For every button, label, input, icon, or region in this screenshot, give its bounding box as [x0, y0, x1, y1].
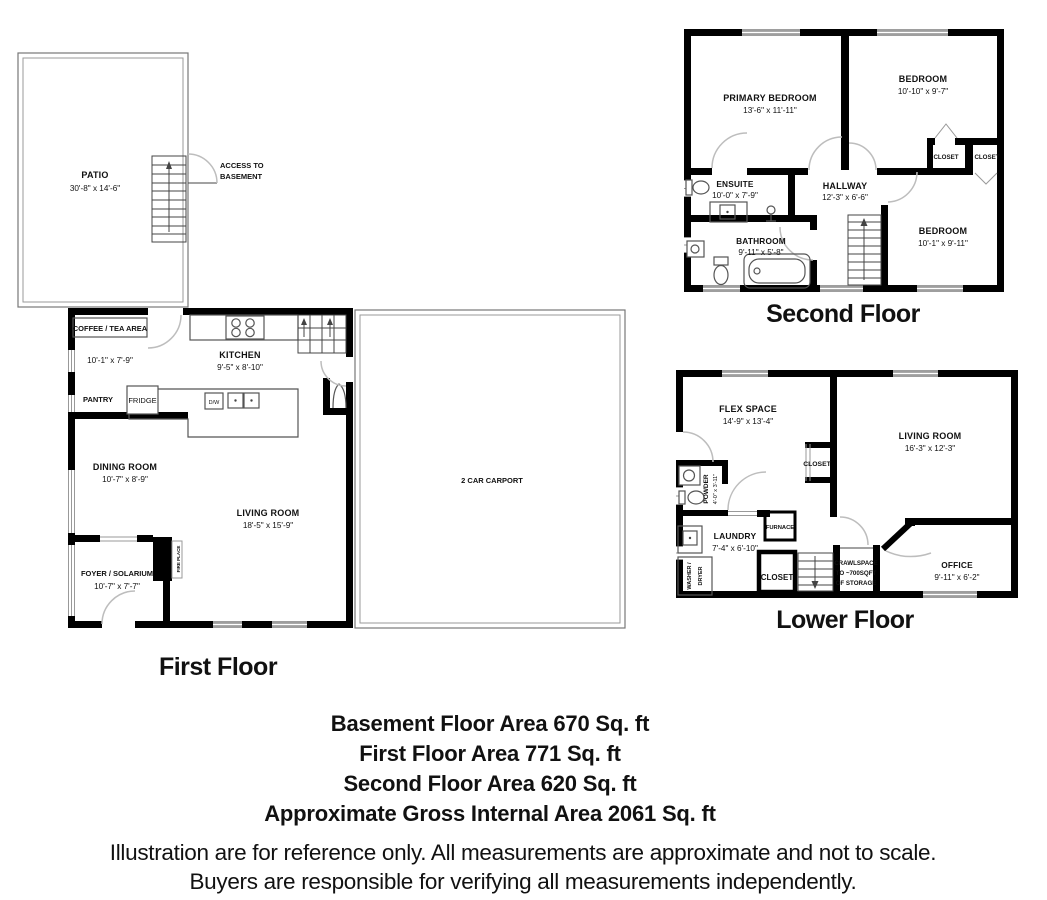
summary-basement: Basement Floor Area 670 Sq. ft — [331, 711, 650, 736]
lower-floor-plan: FLEX SPACE 14'-9" x 13'-4" LIVING ROOM 1… — [676, 370, 1018, 634]
room-dims-flex-space: 14'-9" x 13'-4" — [723, 417, 773, 426]
room-dims-coffee-tea: 10'-1" x 7'-9" — [87, 356, 133, 365]
room-label-ensuite: ENSUITE — [716, 179, 754, 189]
room-label-flex-space: FLEX SPACE — [719, 404, 777, 414]
foyer-entry-door-arc — [102, 591, 135, 624]
room-dims-foyer: 10'-7" x 7'-7" — [94, 582, 140, 591]
fireplace-block — [153, 537, 172, 581]
powder-fixtures — [679, 466, 704, 504]
disclaimer-line1: Illustration are for reference only. All… — [110, 840, 936, 865]
access-basement-line1: ACCESS TO — [220, 161, 264, 170]
crawlspace-line3: OF STORAGE — [836, 580, 877, 587]
bedroom-lower-door-arc — [888, 172, 917, 202]
room-label-laundry: LAUNDRY — [714, 531, 757, 541]
closet-bifold-icon-right — [975, 173, 997, 184]
room-dims-living: 18'-5" x 15'-9" — [243, 521, 293, 530]
first-floor-stairs — [298, 315, 346, 353]
area-summary: Basement Floor Area 670 Sq. ft First Flo… — [264, 711, 716, 826]
stove — [226, 316, 264, 339]
living-door-arc — [840, 517, 868, 545]
summary-first: First Floor Area 771 Sq. ft — [359, 741, 621, 766]
floor-plan-canvas: PATIO 30'-8" x 14'-6" ACCESS TO BASEMENT — [0, 0, 1047, 900]
first-floor-plan: PATIO 30'-8" x 14'-6" ACCESS TO BASEMENT — [18, 53, 353, 681]
access-basement-line2: BASEMENT — [220, 172, 263, 181]
room-label-foyer: FOYER / SOLARIUM — [81, 569, 153, 578]
kitchen-island — [127, 386, 298, 437]
summary-second: Second Floor Area 620 Sq. ft — [343, 771, 637, 796]
bedroom-right-door-arc — [849, 143, 876, 170]
kitchen-counter — [190, 315, 298, 340]
patio-door-arc — [148, 315, 181, 348]
room-dims-living-room: 16'-3" x 12'-3" — [905, 444, 955, 453]
room-dims-laundry: 7'-4" x 6'-10" — [712, 544, 758, 553]
room-label-hallway: HALLWAY — [823, 181, 868, 191]
room-label-bathroom: BATHROOM — [736, 236, 786, 246]
toilet-bowl — [688, 491, 704, 504]
floor-plan-document: PATIO 30'-8" x 14'-6" ACCESS TO BASEMENT — [0, 0, 1047, 900]
lower-floor-title: Lower Floor — [776, 606, 914, 634]
stairs-to-basement — [152, 156, 186, 242]
disclaimer: Illustration are for reference only. All… — [110, 840, 936, 894]
closet-bottom-box — [759, 552, 795, 592]
second-floor-plan: PRIMARY BEDROOM 13'-6" x 11'-11" BEDROOM… — [684, 29, 1004, 328]
room-label-dining: DINING ROOM — [93, 462, 157, 472]
room-label-closet-bottom: CLOSET — [761, 573, 794, 582]
room-dims-bathroom: 9'-11" x 5'-8" — [738, 248, 783, 257]
room-dims-primary-bedroom: 13'-6" x 11'-11" — [743, 106, 797, 115]
dryer-label: DRYER — [698, 566, 704, 585]
bathroom-sink — [687, 241, 704, 257]
room-label-kitchen: KITCHEN — [219, 350, 260, 360]
room-label-living-room: LIVING ROOM — [899, 431, 962, 441]
flex-entry-door-arc — [683, 432, 713, 462]
fridge-label: FRIDGE — [128, 396, 156, 405]
room-label-furnace: FURNACE — [766, 525, 794, 531]
room-dims-ensuite: 10'-0" x 7'-9" — [712, 191, 758, 200]
carport: 2 CAR CARPORT — [355, 310, 625, 628]
room-label-living: LIVING ROOM — [237, 508, 300, 518]
room-label-coffee-tea: COFFEE / TEA AREA — [73, 324, 148, 333]
room-label-closet-left: CLOSET — [933, 154, 958, 161]
basement-door-arc — [188, 154, 217, 183]
washer-label: WASHER / — [687, 562, 693, 590]
room-dims-bedroom-lower: 10'-1" x 9'-11" — [918, 239, 968, 248]
chimney-arch — [333, 384, 346, 408]
dishwasher-label: D/W — [209, 400, 221, 406]
powder-sink — [679, 466, 700, 485]
closet-bifold-icon-left — [935, 124, 957, 138]
toilet-tank — [714, 257, 728, 265]
office-door-arc — [886, 551, 931, 557]
room-label-bedroom-lower: BEDROOM — [919, 226, 967, 236]
room-label-pantry: PANTRY — [83, 395, 113, 404]
room-dims-powder: 4'-0" x 3'-11" — [713, 474, 719, 504]
laundry-opening — [728, 512, 757, 516]
room-label-primary-bedroom: PRIMARY BEDROOM — [723, 93, 817, 103]
powder-door-arc — [728, 472, 766, 510]
room-dims-office: 9'-11" x 6'-2" — [934, 573, 979, 582]
summary-gross: Approximate Gross Internal Area 2061 Sq.… — [264, 801, 716, 826]
ensuite-door-arc — [712, 133, 747, 168]
room-label-powder: POWDER — [703, 474, 710, 504]
second-floor-stairs — [848, 215, 881, 285]
toilet-tank — [679, 491, 685, 504]
room-dims-bedroom-right: 10'-10" x 9'-7" — [898, 87, 948, 96]
room-label-bedroom-right: BEDROOM — [899, 74, 947, 84]
room-label-closet-right: CLOSET — [974, 154, 999, 161]
washer-dryer — [678, 557, 712, 595]
crawlspace-line1: CRAWLSPACE — [834, 560, 878, 567]
shower-head-icon — [767, 206, 775, 214]
toilet-bowl — [714, 266, 728, 285]
room-dims-dining: 10'-7" x 8'-9" — [102, 475, 148, 484]
second-floor-title: Second Floor — [766, 300, 921, 328]
carport-label: 2 CAR CARPORT — [461, 476, 523, 485]
room-dims-patio: 30'-8" x 14'-6" — [70, 184, 120, 193]
primary-bedroom-door-arc — [809, 137, 842, 170]
patio: PATIO 30'-8" x 14'-6" ACCESS TO BASEMENT — [18, 53, 264, 307]
fireplace-label: FIRE PLACE — [176, 546, 181, 573]
toilet-tank — [686, 180, 692, 195]
crawlspace-line2: TO ~700SQFT — [836, 570, 877, 577]
disclaimer-line2: Buyers are responsible for verifying all… — [189, 869, 856, 894]
room-label-closet-mid: CLOSET — [803, 461, 831, 468]
lower-floor-stairs — [798, 553, 833, 591]
office-angled-wall — [883, 521, 913, 549]
room-dims-hallway: 12'-3" x 6'-6" — [822, 193, 868, 202]
laundry-fixtures — [678, 526, 712, 595]
first-floor-title: First Floor — [159, 653, 278, 681]
room-label-office: OFFICE — [941, 560, 973, 570]
toilet-bowl — [693, 181, 709, 194]
room-label-patio: PATIO — [81, 170, 108, 180]
room-dims-kitchen: 9'-5" x 8'-10" — [217, 363, 263, 372]
